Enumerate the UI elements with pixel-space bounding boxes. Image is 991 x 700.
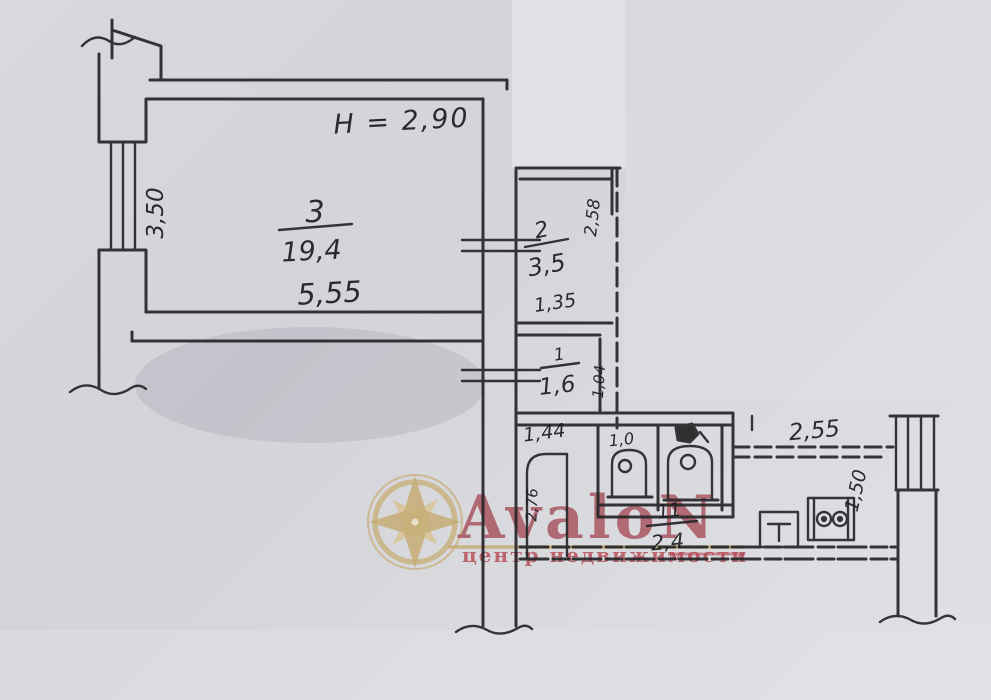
toilet-tank-right (681, 455, 695, 469)
room1-width-label: 1,44 (522, 420, 567, 447)
scan-light-area (625, 0, 991, 400)
scan-shadow-smudge (135, 327, 485, 443)
window-hatch-right (896, 416, 934, 490)
room3-width-label: 5,55 (296, 274, 362, 311)
kitchen-depth-label: 1,50 (841, 468, 872, 514)
wall-right-outer (898, 490, 936, 616)
room1-depth-label: 1,04 (589, 364, 609, 399)
room2-depth-label: 2,58 (581, 197, 605, 237)
floor-plan-canvas: AvaloN центр недвижимости (0, 0, 991, 700)
room3-depth-label: 3,50 (143, 187, 169, 238)
corridor-area: 2,4 (650, 529, 685, 556)
room2-area: 3,5 (525, 248, 567, 282)
wall-left-lower (99, 250, 146, 388)
kitchen-width-label: 2,55 (788, 416, 841, 446)
wall-kitchen-top (733, 447, 893, 457)
room1-number: 1 (553, 344, 567, 365)
scanned-floor-plan: AvaloN центр недвижимости (0, 0, 991, 700)
scan-light-patch (512, 0, 625, 168)
ceiling-height-label: H = 2,90 (333, 102, 471, 140)
wall-top-outer (150, 80, 507, 89)
entry-hall-depth-label: 2,76 (522, 488, 541, 522)
wc-width-label: 1,0 (608, 429, 635, 451)
stove-burner-dot (838, 517, 841, 520)
wall-break-bottom-right (880, 616, 955, 624)
stove-burner-dot (822, 517, 825, 520)
scan-artifacts (0, 0, 991, 700)
room3-number: 3 (305, 195, 324, 230)
wall-left-upper (99, 54, 146, 142)
wall-room2-bottom (517, 323, 612, 335)
toilet-tank-left (619, 460, 631, 472)
ink-scribble (676, 424, 698, 442)
wall-break-bottom-left (70, 385, 146, 394)
room1-area: 1,6 (538, 371, 577, 401)
sink-tap (768, 524, 790, 541)
wall-room2-top (516, 168, 620, 179)
corridor-number: 11 (656, 498, 683, 523)
room2-width-label: 1,35 (533, 289, 578, 317)
ink-tick (700, 432, 708, 442)
wall-top-left-diagonal (112, 30, 161, 80)
wall-break-top-left (82, 37, 135, 46)
compass-center (412, 519, 419, 526)
window-hatch-left (111, 142, 135, 250)
room3-area: 19,4 (281, 234, 343, 268)
scan-light-bottom (0, 630, 991, 700)
